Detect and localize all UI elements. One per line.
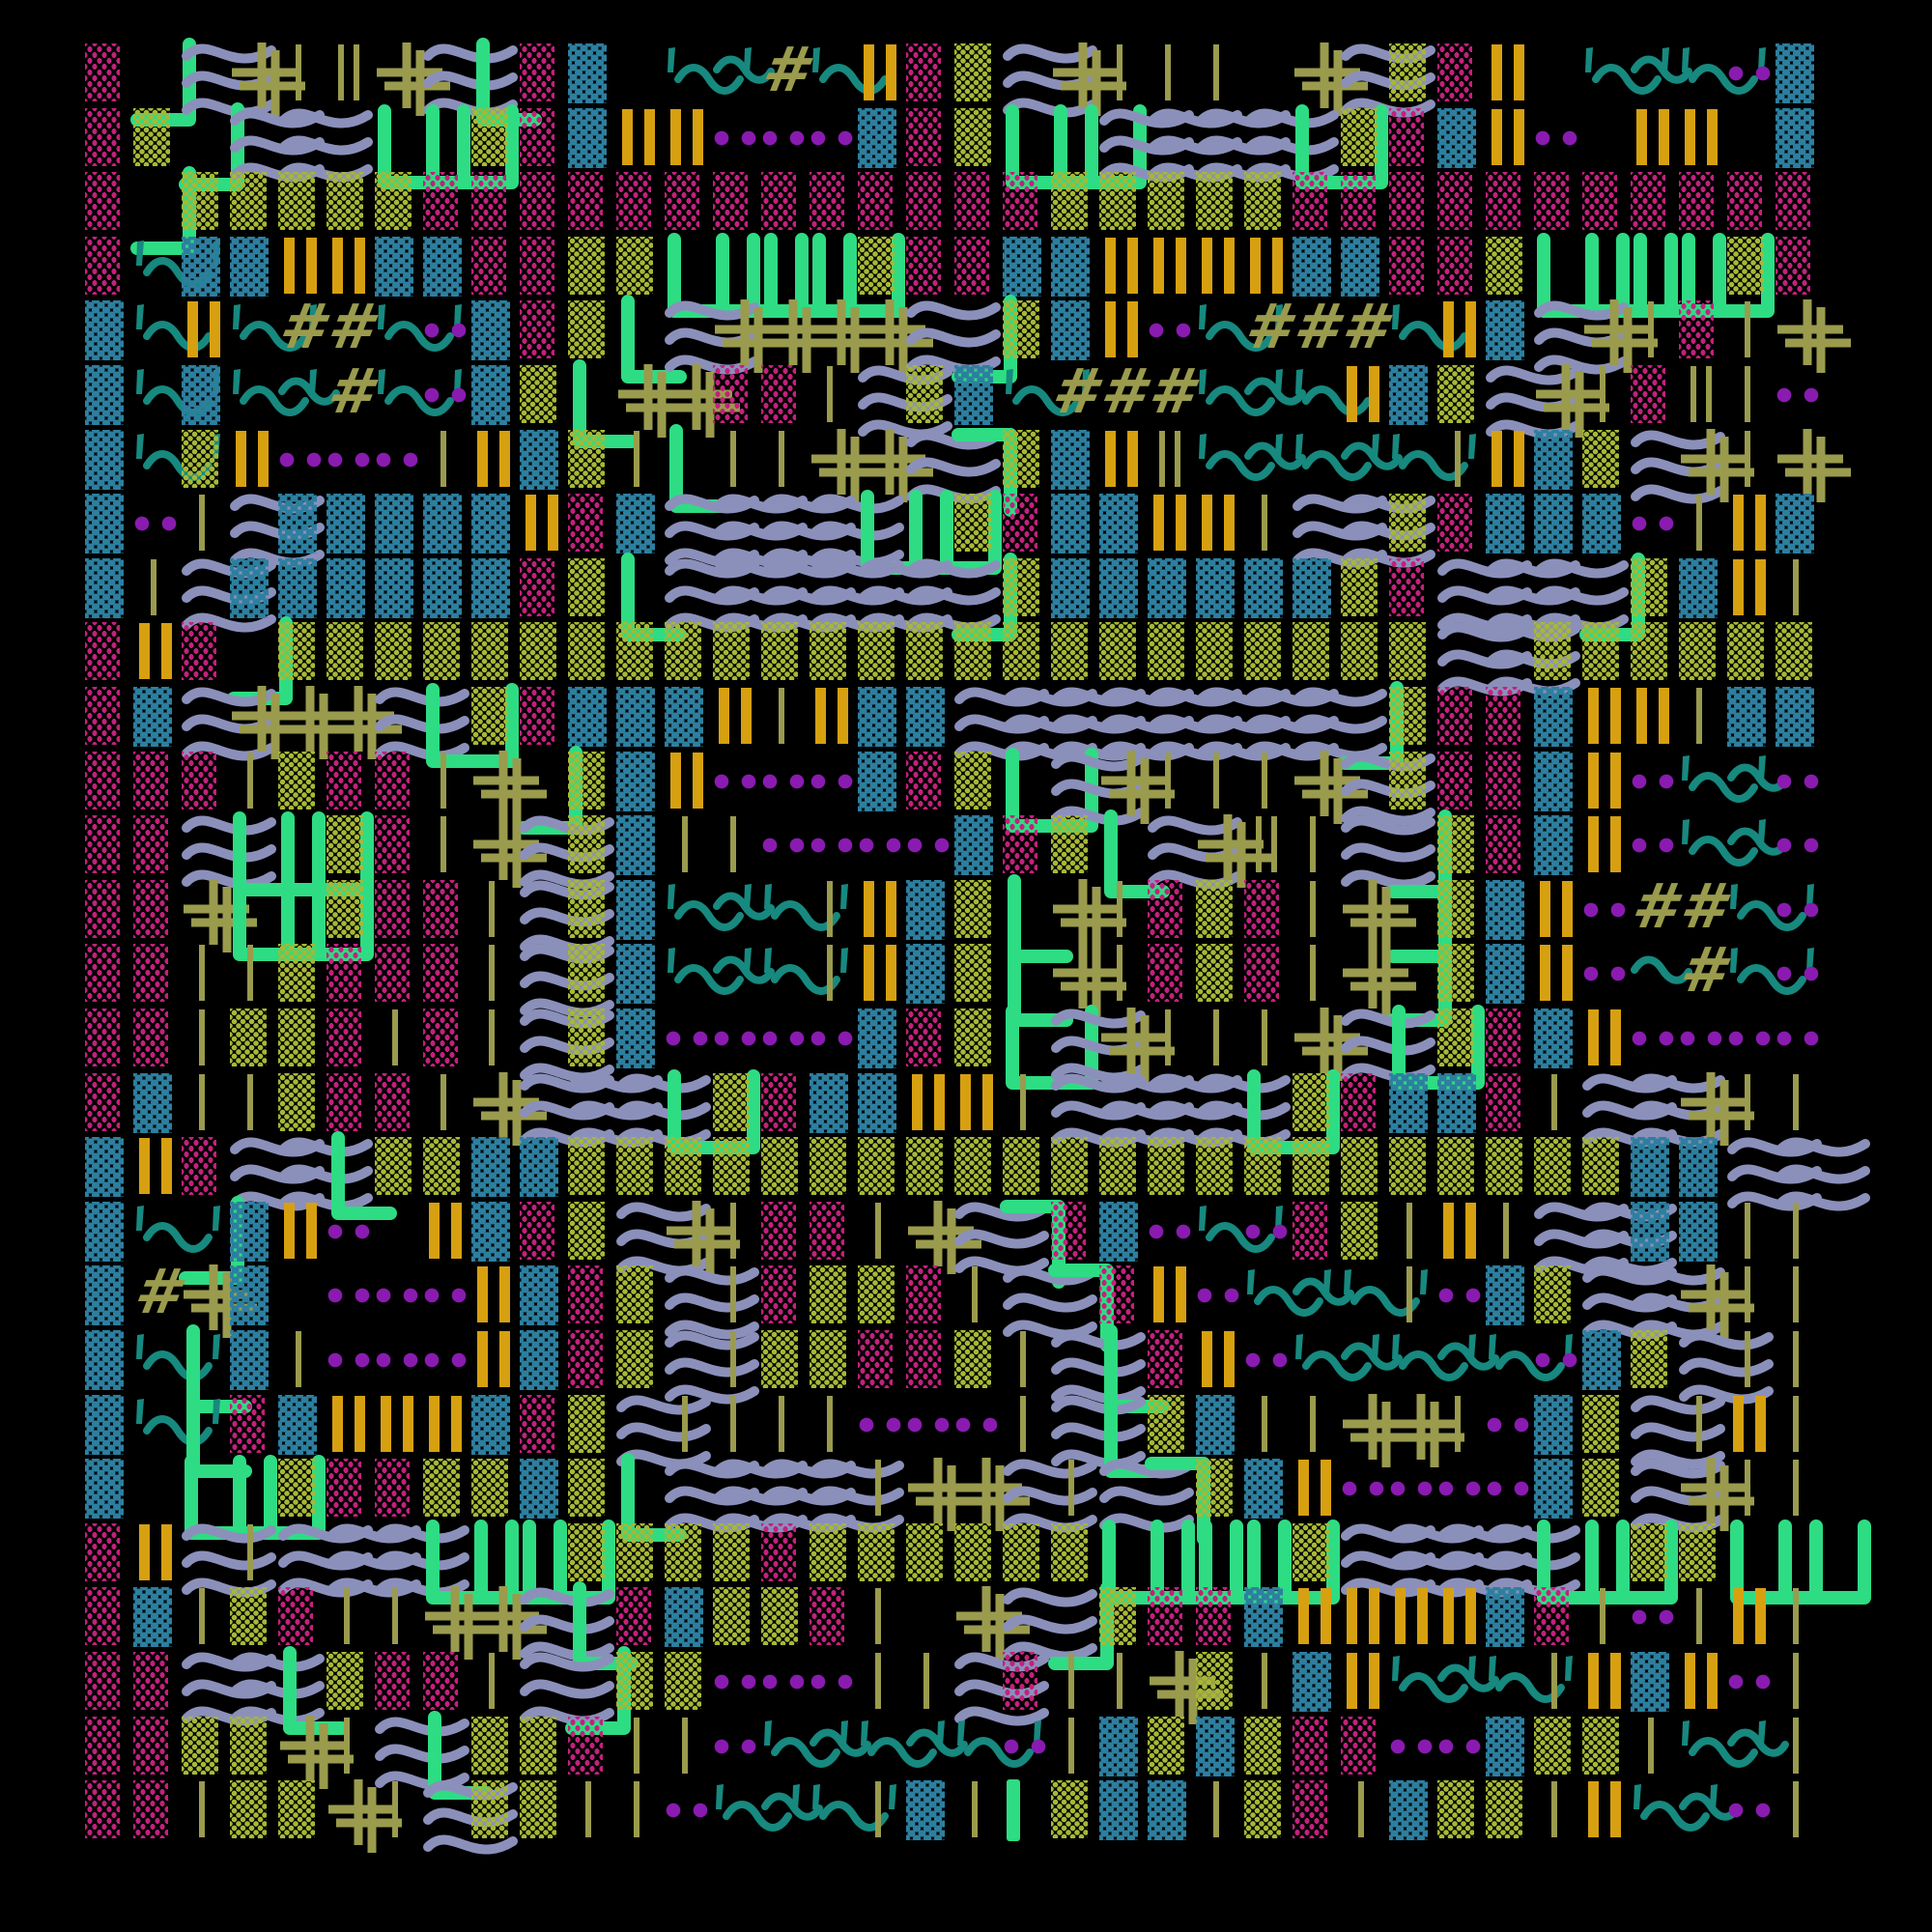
glyph-cell	[665, 619, 713, 684]
glyph-cell	[568, 619, 616, 684]
glyph-cell	[423, 1777, 471, 1842]
olive-dot-square	[471, 108, 508, 166]
glyph-cell	[713, 941, 761, 1006]
glyph-cell	[520, 684, 568, 749]
olive-dot-square	[1582, 1459, 1619, 1517]
glyph-cell	[182, 1199, 230, 1264]
glyph-cell	[85, 105, 133, 170]
olive-dot-square	[568, 1459, 605, 1517]
khaki-single-bar	[489, 1653, 495, 1709]
glyph-cell	[858, 1263, 906, 1327]
glyph-cell	[713, 1006, 761, 1070]
glyph-cell	[1582, 1134, 1631, 1199]
glyph-cell	[133, 877, 182, 942]
glyph-cell	[713, 41, 761, 105]
pink-dot-square	[1486, 1073, 1520, 1131]
khaki-single-bar	[199, 495, 205, 551]
olive-dot-square	[1582, 1395, 1619, 1453]
blue-weave-square	[1486, 944, 1524, 1004]
blue-weave-square	[520, 1459, 558, 1519]
glyph-cell	[1437, 1199, 1486, 1264]
glyph-cell	[1727, 1006, 1776, 1070]
glyph-cell	[1486, 555, 1534, 620]
olive-dot-square	[1148, 1137, 1184, 1195]
glyph-cell	[327, 1584, 375, 1649]
glyph-cell	[1341, 1714, 1389, 1778]
glyph-cell	[954, 234, 1003, 298]
glyph-cell	[1534, 555, 1582, 620]
glyph-cell	[906, 619, 954, 684]
olive-dot-square	[471, 622, 508, 680]
glyph-cell	[327, 877, 375, 942]
glyph-cell	[1148, 619, 1196, 684]
teal-tilde	[1631, 41, 1679, 89]
glyph-cell	[568, 749, 616, 813]
blue-weave-square	[616, 880, 655, 940]
pink-dot-square	[182, 1137, 216, 1195]
glyph-cell	[1776, 105, 1824, 170]
glyph-cell	[1679, 105, 1727, 170]
teal-tick-tilde-tick	[1293, 362, 1341, 416]
olive-dot-square	[810, 1330, 846, 1388]
purple-dot-pair	[375, 1352, 419, 1368]
pink-dot-square	[1293, 1202, 1327, 1260]
glyph-cell	[1244, 427, 1293, 492]
olive-dot-square	[1148, 1717, 1184, 1775]
pink-dot-square	[1244, 944, 1279, 1002]
khaki-hash-glyph: #	[1677, 877, 1732, 937]
purple-dot-pair	[1727, 1803, 1772, 1818]
glyph-cell	[230, 1714, 278, 1778]
glyph-cell	[423, 1456, 471, 1520]
glyph-cell	[1534, 1714, 1582, 1778]
glyph-cell	[230, 877, 278, 942]
glyph-cell	[1003, 169, 1051, 234]
glyph-cell	[1099, 1456, 1148, 1520]
glyph-cell	[1582, 362, 1631, 427]
olive-dot-square	[906, 365, 943, 423]
purple-dot-pair	[713, 1031, 757, 1046]
glyph-cell	[858, 1070, 906, 1135]
glyph-cell	[1148, 1006, 1196, 1070]
olive-dot-square	[1148, 622, 1184, 680]
glyph-cell	[182, 812, 230, 877]
glyph-cell	[1582, 427, 1631, 492]
gold-double-bar	[1540, 945, 1573, 1001]
glyph-cell	[713, 812, 761, 877]
glyph-cell	[1148, 234, 1196, 298]
glyph-cell	[375, 1649, 423, 1714]
glyph-cell	[665, 1649, 713, 1714]
glyph-cell	[1244, 234, 1293, 298]
glyph-cell	[1631, 1327, 1679, 1392]
olive-dot-square	[1631, 1523, 1667, 1581]
blue-weave-square	[616, 944, 655, 1004]
glyph-cell	[665, 1714, 713, 1778]
glyph-cell	[713, 1714, 761, 1778]
blue-weave-square	[616, 687, 655, 747]
glyph-cell	[471, 105, 520, 170]
glyph-cell	[1631, 619, 1679, 684]
olive-dot-square	[1437, 1137, 1474, 1195]
glyph-cell	[1776, 1199, 1824, 1264]
glyph-cell	[133, 812, 182, 877]
pink-dot-square	[423, 1009, 458, 1066]
blue-weave-square	[1051, 558, 1090, 618]
gold-double-bar	[477, 431, 510, 487]
olive-dot-square	[568, 1137, 605, 1195]
olive-dot-square	[568, 300, 605, 358]
glyph-cell	[1486, 1134, 1534, 1199]
olive-dot-square	[1389, 622, 1426, 680]
olive-dot-square	[810, 1137, 846, 1195]
khaki-single-bar	[1793, 1074, 1799, 1130]
blue-weave-square	[1196, 1717, 1235, 1776]
pink-dot-square	[327, 1073, 361, 1131]
glyph-cell	[906, 362, 954, 427]
blue-weave-square	[85, 1459, 124, 1519]
glyph-cell	[520, 298, 568, 362]
glyph-cell	[1437, 105, 1486, 170]
olive-dot-square	[954, 944, 991, 1002]
glyph-cell	[278, 491, 327, 555]
glyph-cell	[1631, 427, 1679, 492]
gold-double-bar	[477, 1266, 510, 1322]
teal-tick-tilde-tick	[1341, 1263, 1389, 1317]
glyph-cell	[665, 105, 713, 170]
glyph-cell	[520, 1777, 568, 1842]
olive-dot-square	[1003, 1137, 1039, 1195]
pink-dot-square	[616, 1587, 651, 1645]
olive-dot-square	[1196, 622, 1233, 680]
glyph-cell	[1486, 1456, 1534, 1520]
glyph-cell	[1293, 684, 1341, 749]
glyph-cell	[1486, 1006, 1534, 1070]
khaki-single-bar	[1213, 44, 1219, 100]
glyph-cell	[327, 427, 375, 492]
glyph-cell	[761, 941, 810, 1006]
olive-dot-square	[1727, 237, 1764, 295]
glyph-cell	[616, 877, 665, 942]
blue-weave-square	[471, 365, 510, 425]
glyph-cell	[1341, 619, 1389, 684]
glyph-cell	[1631, 1134, 1679, 1199]
glyph-cell	[423, 1649, 471, 1714]
glyph-cell	[278, 105, 327, 170]
teal-tick-tilde-tick	[133, 1392, 182, 1446]
blue-weave-square	[1148, 558, 1186, 618]
glyph-cell	[713, 298, 761, 362]
glyph-cell	[423, 362, 471, 427]
purple-dot-pair	[327, 1288, 371, 1303]
glyph-cell	[858, 1134, 906, 1199]
glyph-cell	[858, 1327, 906, 1392]
glyph-cell	[1099, 105, 1148, 170]
glyph-cell	[1196, 619, 1244, 684]
khaki-single-bar	[247, 945, 253, 1001]
glyph-cell	[616, 1392, 665, 1457]
glyph-cell	[520, 1327, 568, 1392]
glyph-cell	[1486, 105, 1534, 170]
glyph-cell	[1196, 169, 1244, 234]
olive-dot-square	[1196, 1137, 1233, 1195]
glyph-cell	[665, 234, 713, 298]
blue-weave-square	[278, 558, 317, 618]
khaki-single-bar	[1068, 1653, 1074, 1709]
glyph-cell	[1437, 941, 1486, 1006]
blue-weave-square	[906, 1780, 945, 1840]
khaki-single-bar	[1262, 1396, 1267, 1452]
olive-dot-square	[954, 752, 991, 810]
glyph-cell	[327, 169, 375, 234]
glyph-cell	[133, 1070, 182, 1135]
khaki-single-bar	[1406, 1266, 1412, 1322]
gold-double-bar	[1636, 688, 1669, 744]
glyph-cell	[954, 1006, 1003, 1070]
glyph-cell	[278, 749, 327, 813]
glyph-cell	[1196, 234, 1244, 298]
blue-weave-square	[278, 1395, 317, 1455]
glyph-cell	[954, 619, 1003, 684]
glyph-cell	[1099, 234, 1148, 298]
glyph-cell	[520, 1263, 568, 1327]
khaki-single-bar	[730, 1396, 736, 1452]
glyph-cell	[761, 1714, 810, 1778]
glyph-cell	[1437, 1070, 1486, 1135]
glyph-artwork: ##############	[0, 0, 1932, 1932]
olive-dot-square	[954, 1137, 991, 1195]
khaki-single-bar	[1455, 1396, 1461, 1452]
glyph-cell	[665, 41, 713, 105]
glyph-cell	[1437, 491, 1486, 555]
khaki-single-bar	[489, 1009, 495, 1065]
glyph-cell	[761, 1520, 810, 1585]
purple-dot-pair	[761, 774, 806, 789]
glyph-cell	[1003, 1134, 1051, 1199]
glyph-cell	[713, 1263, 761, 1327]
glyph-cell	[665, 491, 713, 555]
glyph-cell	[713, 1520, 761, 1585]
glyph-cell	[1534, 941, 1582, 1006]
glyph-cell	[1534, 1392, 1582, 1457]
glyph-cell	[1099, 684, 1148, 749]
khaki-single-bar	[1117, 881, 1122, 937]
glyph-cell	[182, 1006, 230, 1070]
glyph-cell	[1582, 684, 1631, 749]
khaki-single-bar	[1455, 431, 1461, 487]
pink-dot-square	[906, 172, 941, 230]
gold-double-bar	[139, 1524, 172, 1580]
olive-dot-square	[278, 1780, 315, 1838]
pink-dot-square	[85, 43, 120, 101]
glyph-cell	[1437, 362, 1486, 427]
glyph-cell	[1341, 1070, 1389, 1135]
khaki-single-bar	[1262, 495, 1267, 551]
pink-dot-square	[133, 1717, 168, 1775]
glyph-cell	[1582, 619, 1631, 684]
glyph-cell	[1727, 169, 1776, 234]
teal-tilde	[906, 1714, 954, 1762]
teal-tick-tilde-tick	[1244, 1263, 1293, 1317]
glyph-cell	[810, 1714, 858, 1778]
olive-dot-square	[568, 815, 605, 873]
glyph-cell	[954, 298, 1003, 362]
glyph-cell	[810, 1584, 858, 1649]
olive-dot-square	[182, 172, 218, 230]
glyph-cell	[85, 619, 133, 684]
blue-weave-square	[1389, 1780, 1428, 1840]
glyph-cell	[1582, 1777, 1631, 1842]
glyph-cell	[1341, 41, 1389, 105]
olive-dot-square	[1341, 108, 1378, 166]
glyph-cell	[1244, 812, 1293, 877]
glyph-cell	[133, 1520, 182, 1585]
glyph-cell	[1099, 1134, 1148, 1199]
blue-weave-square	[810, 1073, 848, 1133]
glyph-cell	[1341, 1263, 1389, 1327]
teal-tick-tilde-tick	[810, 1777, 858, 1832]
khaki-double-cross	[327, 1777, 375, 1855]
glyph-cell	[85, 1263, 133, 1327]
glyph-cell	[1679, 427, 1727, 492]
glyph-cell	[327, 234, 375, 298]
glyph-cell	[1003, 1649, 1051, 1714]
purple-dot-pair	[1437, 1288, 1482, 1303]
glyph-cell	[906, 105, 954, 170]
glyph-cell	[1679, 1456, 1727, 1520]
glyph-cell	[1631, 362, 1679, 427]
glyph-cell	[1679, 555, 1727, 620]
khaki-single-bar	[392, 1588, 398, 1644]
glyph-cell	[1003, 362, 1051, 427]
glyph-cell	[1631, 491, 1679, 555]
khaki-single-bar	[827, 1396, 833, 1452]
khaki-single-bar	[779, 431, 784, 487]
glyph-cell	[278, 1006, 327, 1070]
glyph-cell	[1582, 1714, 1631, 1778]
glyph-cell	[1534, 169, 1582, 234]
teal-tick-tilde-tick	[1679, 1714, 1727, 1768]
teal-tick-tilde-tick	[761, 1714, 810, 1768]
teal-tick-tilde-tick	[133, 362, 182, 416]
khaki-single-bar	[1745, 301, 1750, 357]
pink-dot-square	[906, 1265, 941, 1323]
olive-dot-square	[1341, 1137, 1378, 1195]
glyph-cell	[278, 1327, 327, 1392]
teal-tick-tilde-tick	[858, 1714, 906, 1768]
khaki-double-thin-bars	[1690, 366, 1712, 422]
glyph-cell	[471, 1392, 520, 1457]
glyph-cell	[1148, 1199, 1196, 1264]
glyph-cell	[1244, 1392, 1293, 1457]
glyph-cell	[1437, 1584, 1486, 1649]
glyph-cell	[423, 1070, 471, 1135]
glyph-cell	[1631, 1199, 1679, 1264]
glyph-cell	[568, 427, 616, 492]
pink-dot-square	[375, 1459, 410, 1517]
khaki-single-bar	[1551, 1074, 1557, 1130]
glyph-cell	[1727, 1777, 1776, 1842]
glyph-cell	[1727, 1392, 1776, 1457]
glyph-cell	[810, 1456, 858, 1520]
glyph-cell: #	[1148, 362, 1196, 427]
glyph-cell	[1776, 491, 1824, 555]
glyph-cell	[616, 1456, 665, 1520]
glyph-cell	[1148, 749, 1196, 813]
gold-double-bar	[719, 688, 752, 744]
glyph-cell	[471, 298, 520, 362]
glyph-cell	[1099, 877, 1148, 942]
purple-dot-pair	[327, 452, 371, 468]
khaki-single-bar	[1213, 1009, 1219, 1065]
purple-dot-pair	[1776, 838, 1820, 853]
glyph-cell	[616, 1070, 665, 1135]
glyph-cell	[1776, 1456, 1824, 1520]
purple-dot-pair	[278, 452, 323, 468]
glyph-cell	[375, 877, 423, 942]
pink-dot-square	[906, 1330, 941, 1388]
olive-dot-square	[568, 237, 605, 295]
glyph-cell	[810, 1777, 858, 1842]
gold-double-bar	[1492, 431, 1524, 487]
teal-tick-tilde-tick	[1389, 427, 1437, 481]
glyph-cell	[568, 362, 616, 427]
blue-weave-square	[230, 558, 269, 618]
olive-dot-square	[1437, 1009, 1474, 1066]
glyph-cell	[1437, 812, 1486, 877]
pink-dot-square	[1293, 172, 1327, 230]
pink-dot-square	[858, 172, 893, 230]
pink-dot-square	[761, 365, 796, 423]
glyph-cell	[85, 877, 133, 942]
glyph-cell	[520, 234, 568, 298]
glyph-cell	[1196, 1006, 1244, 1070]
olive-dot-square	[713, 1523, 750, 1581]
glyph-cell	[1582, 234, 1631, 298]
glyph-cell	[1341, 1134, 1389, 1199]
purple-dot-pair	[1631, 1609, 1675, 1625]
glyph-cell	[761, 1134, 810, 1199]
khaki-single-bar	[827, 881, 833, 937]
glyph-cell	[1293, 1520, 1341, 1585]
olive-dot-square	[1099, 1587, 1136, 1645]
glyph-cell	[1148, 1327, 1196, 1392]
glyph-cell	[1776, 427, 1824, 492]
glyph-cell	[810, 1263, 858, 1327]
glyph-cell	[616, 941, 665, 1006]
glyph-cell	[906, 1392, 954, 1457]
khaki-single-bar	[1310, 945, 1316, 1001]
blue-weave-square	[1534, 815, 1573, 875]
glyph-cell	[1389, 1520, 1437, 1585]
glyph-cell	[906, 1520, 954, 1585]
glyph-cell	[327, 749, 375, 813]
glyph-cell	[616, 362, 665, 427]
olive-dot-square	[1051, 622, 1088, 680]
blue-weave-square	[85, 1395, 124, 1455]
glyph-cell	[1389, 684, 1437, 749]
blue-weave-square	[471, 300, 510, 360]
glyph-cell	[278, 1070, 327, 1135]
glyph-cell	[858, 491, 906, 555]
glyph-cell	[471, 362, 520, 427]
pink-dot-square	[1341, 1073, 1376, 1131]
glyph-cell	[906, 1777, 954, 1842]
glyph-cell	[1776, 1070, 1824, 1135]
pink-dot-square	[85, 172, 120, 230]
blue-weave-square	[1776, 687, 1814, 747]
glyph-cell	[1631, 41, 1679, 105]
